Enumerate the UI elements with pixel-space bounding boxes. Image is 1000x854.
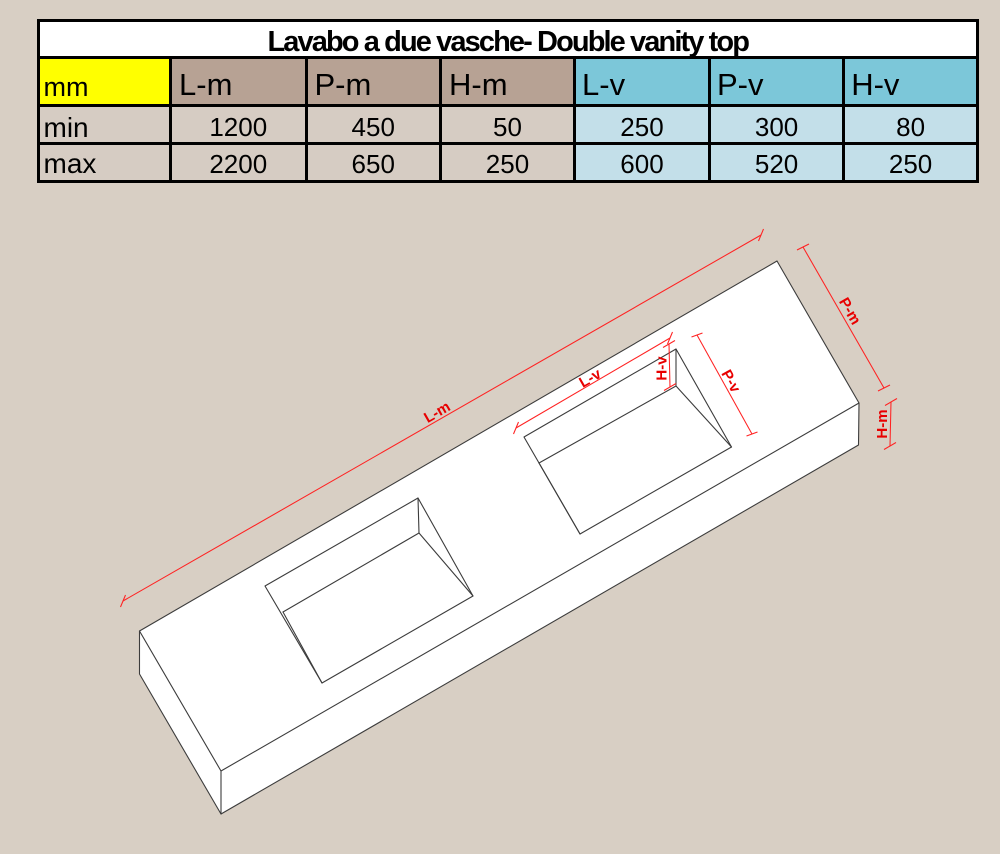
svg-text:H-m: H-m bbox=[874, 409, 891, 438]
svg-text:H-v: H-v bbox=[654, 356, 671, 381]
svg-text:L-m: L-m bbox=[421, 398, 453, 426]
